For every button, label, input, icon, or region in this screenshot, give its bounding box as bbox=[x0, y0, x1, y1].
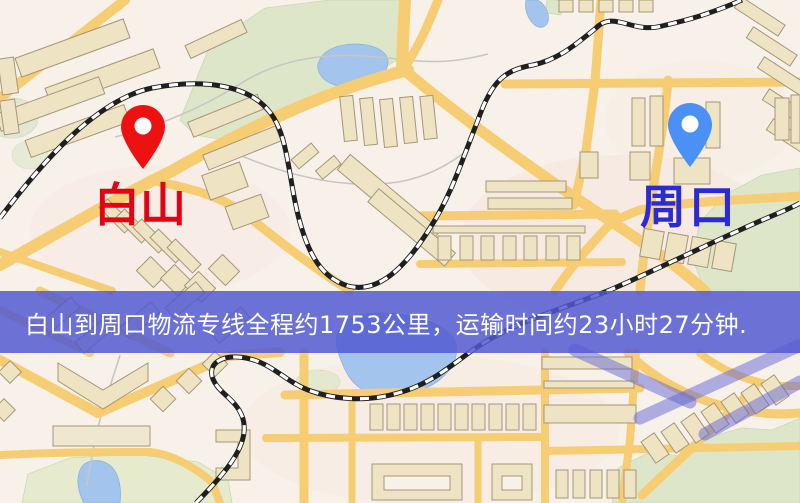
origin-label: 白山 bbox=[94, 178, 186, 232]
route-info-text: 白山到周口物流专线全程约1753公里，运输时间约23小时27分钟. bbox=[25, 305, 747, 340]
destination-label: 周口 bbox=[640, 180, 738, 234]
pin-hole bbox=[682, 116, 699, 133]
map-canvas: 白山 周口 白山到周口物流专线全程约1753公里，运输时间约23小时27分钟. bbox=[0, 0, 800, 503]
water-sliver-top bbox=[525, 0, 548, 27]
map-image: 白山 周口 bbox=[0, 0, 800, 503]
route-info-banner: 白山到周口物流专线全程约1753公里，运输时间约23小时27分钟. bbox=[0, 291, 800, 353]
origin-pin-icon bbox=[121, 105, 165, 169]
pin-hole bbox=[135, 118, 152, 135]
